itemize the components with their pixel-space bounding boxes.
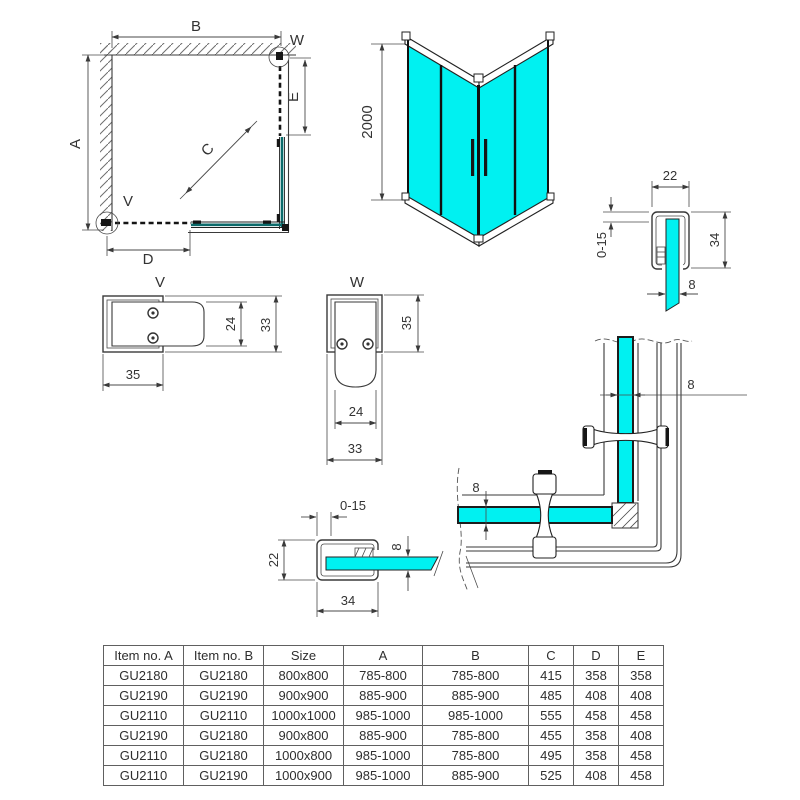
table-cell: 458 [619, 766, 664, 786]
table-cell: GU2180 [184, 726, 264, 746]
table-cell: 885-900 [344, 726, 423, 746]
table-cell: GU2180 [184, 666, 264, 686]
section-v-label: V [123, 193, 133, 210]
table-cell: 785-800 [344, 666, 423, 686]
wall-profile: 0-15 22 34 8 [266, 498, 443, 617]
table-row: GU2110 GU2180 1000x800 985-1000 785-800 … [104, 746, 664, 766]
table-header-row: Item no. A Item no. B Size A B C D E [104, 646, 664, 666]
dim-d-label: D [143, 251, 154, 268]
table-cell: 408 [574, 766, 619, 786]
wall-adjust-label: 0-15 [340, 498, 366, 513]
table-cell: 358 [574, 666, 619, 686]
door-handle-right [484, 139, 487, 176]
table-cell: 985-1000 [423, 706, 529, 726]
table-row: GU2190 GU2190 900x900 885-900 885-900 48… [104, 686, 664, 706]
table-cell: 408 [619, 726, 664, 746]
table-cell: 900x800 [264, 726, 344, 746]
size-table: Item no. A Item no. B Size A B C D E GU2… [103, 645, 664, 786]
table-cell: GU2190 [184, 766, 264, 786]
table-cell: 525 [529, 766, 574, 786]
wall-glass-label: 8 [389, 543, 404, 550]
track-width-label: 22 [663, 168, 677, 183]
col-header: Item no. A [104, 646, 184, 666]
table-cell: GU2180 [184, 746, 264, 766]
table-cell: 415 [529, 666, 574, 686]
table-cell: 1000x1000 [264, 706, 344, 726]
table-cell: 495 [529, 746, 574, 766]
corner-glass-b-label: 8 [472, 480, 479, 495]
table-cell: 785-800 [423, 666, 529, 686]
corner-detail: 8 8 [457, 337, 747, 592]
table-row: GU2110 GU2110 1000x1000 985-1000 985-100… [104, 706, 664, 726]
profile-v-outer-label: 33 [258, 318, 273, 332]
table-cell: GU2110 [104, 706, 184, 726]
profile-w-label: W [350, 274, 365, 291]
section-w-label: W [290, 32, 305, 49]
iso-view: 2000 [359, 32, 554, 246]
col-header: Size [264, 646, 344, 666]
table-cell: GU2190 [184, 686, 264, 706]
dim-c-label: C [198, 140, 218, 160]
wall-width-label: 34 [341, 593, 355, 608]
wall-hatch-left [100, 43, 112, 231]
profile-v-label: V [155, 274, 165, 291]
table-cell: GU2110 [104, 766, 184, 786]
top-track-profile: 22 0-15 34 8 [594, 168, 731, 311]
col-header: D [574, 646, 619, 666]
table-cell: 885-900 [423, 686, 529, 706]
table-cell: GU2180 [104, 666, 184, 686]
plan-view: B A E D C [67, 18, 311, 268]
track-adjust-label: 0-15 [594, 232, 609, 258]
table-cell: 455 [529, 726, 574, 746]
table-cell: 458 [619, 746, 664, 766]
table-row: GU2110 GU2190 1000x900 985-1000 885-900 … [104, 766, 664, 786]
col-header: Item no. B [184, 646, 264, 666]
table-cell: 408 [574, 686, 619, 706]
profile-w-outer-label: 33 [348, 441, 362, 456]
table-cell: 785-800 [423, 746, 529, 766]
col-header: E [619, 646, 664, 666]
table-cell: 458 [574, 706, 619, 726]
table-cell: 900x900 [264, 686, 344, 706]
profile-w: W 35 24 33 [327, 274, 424, 465]
table-cell: 485 [529, 686, 574, 706]
table-cell: 408 [619, 686, 664, 706]
track-glass [666, 219, 679, 311]
table-cell: 358 [574, 726, 619, 746]
table-cell: GU2190 [104, 726, 184, 746]
profile-w-inner-label: 24 [349, 404, 363, 419]
table-cell: 358 [619, 666, 664, 686]
table-cell: GU2110 [104, 746, 184, 766]
col-header: C [529, 646, 574, 666]
wall-height-label: 22 [266, 553, 281, 567]
profile-v-width-label: 35 [126, 367, 140, 382]
corner-glass-horizontal [458, 507, 612, 523]
technical-sheet: B A E D C [0, 0, 800, 800]
table-cell: GU2190 [104, 686, 184, 706]
table-cell: 458 [619, 706, 664, 726]
table-cell: 985-1000 [344, 706, 423, 726]
table-cell: 555 [529, 706, 574, 726]
col-header: B [423, 646, 529, 666]
profile-v: V 24 33 35 [103, 274, 282, 391]
corner-glass-a-label: 8 [687, 377, 694, 392]
table-cell: 785-800 [423, 726, 529, 746]
iso-height-label: 2000 [359, 105, 376, 138]
dim-a-label: A [67, 139, 84, 149]
table-row: GU2180 GU2180 800x800 785-800 785-800 41… [104, 666, 664, 686]
table-cell: GU2110 [184, 706, 264, 726]
table-cell: 985-1000 [344, 746, 423, 766]
table-cell: 1000x800 [264, 746, 344, 766]
table-cell: 885-900 [423, 766, 529, 786]
table-cell: 985-1000 [344, 766, 423, 786]
table-cell: 800x800 [264, 666, 344, 686]
col-header: A [344, 646, 423, 666]
table-cell: 1000x900 [264, 766, 344, 786]
profile-v-inner-label: 24 [223, 317, 238, 331]
door-handle-left [471, 139, 474, 176]
wall-hatch-top [101, 43, 296, 55]
table-cell: 885-900 [344, 686, 423, 706]
track-glass-label: 8 [688, 277, 695, 292]
table-cell: 358 [574, 746, 619, 766]
wall-glass [326, 557, 438, 570]
dim-b-label: B [191, 18, 201, 35]
track-height-label: 34 [707, 233, 722, 247]
table-row: GU2190 GU2180 900x800 885-900 785-800 45… [104, 726, 664, 746]
corner-glass-vertical [618, 337, 633, 503]
dim-e-label: E [285, 92, 302, 102]
profile-w-height-label: 35 [399, 316, 414, 330]
